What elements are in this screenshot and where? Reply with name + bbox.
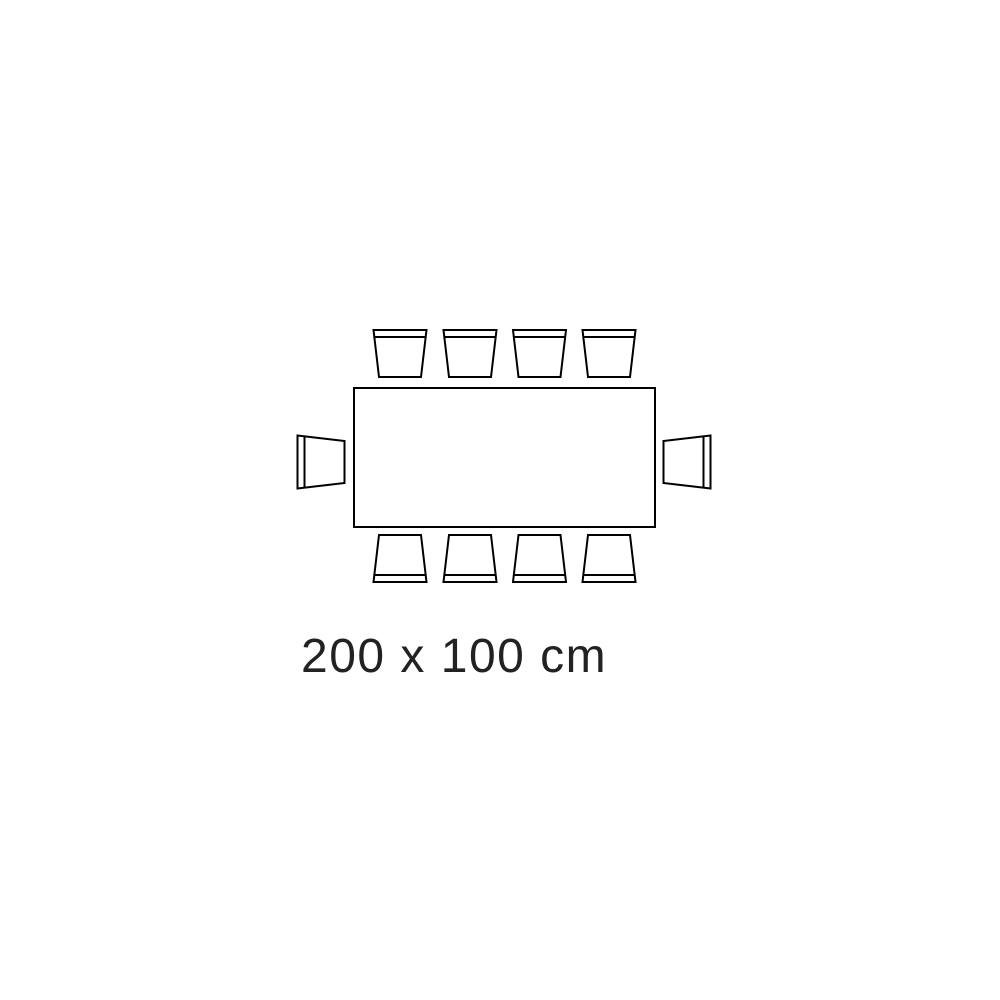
chair-left-end bbox=[298, 436, 345, 489]
chair-bottom-4 bbox=[583, 535, 636, 582]
chair-top-4 bbox=[583, 330, 636, 377]
chair-bottom-2 bbox=[444, 535, 497, 582]
chair-top-2 bbox=[444, 330, 497, 377]
table-top bbox=[354, 388, 655, 527]
chair-right-end bbox=[664, 436, 711, 489]
chair-bottom-3 bbox=[513, 535, 566, 582]
chair-bottom-1 bbox=[374, 535, 427, 582]
table-dimension-diagram-page: 200 x 100 cm bbox=[0, 0, 1000, 1000]
chair-top-3 bbox=[513, 330, 566, 377]
dimensions-label: 200 x 100 cm bbox=[301, 633, 607, 681]
table-seating-diagram bbox=[0, 0, 1000, 1000]
diagram-strokes bbox=[298, 330, 711, 582]
chair-top-1 bbox=[374, 330, 427, 377]
